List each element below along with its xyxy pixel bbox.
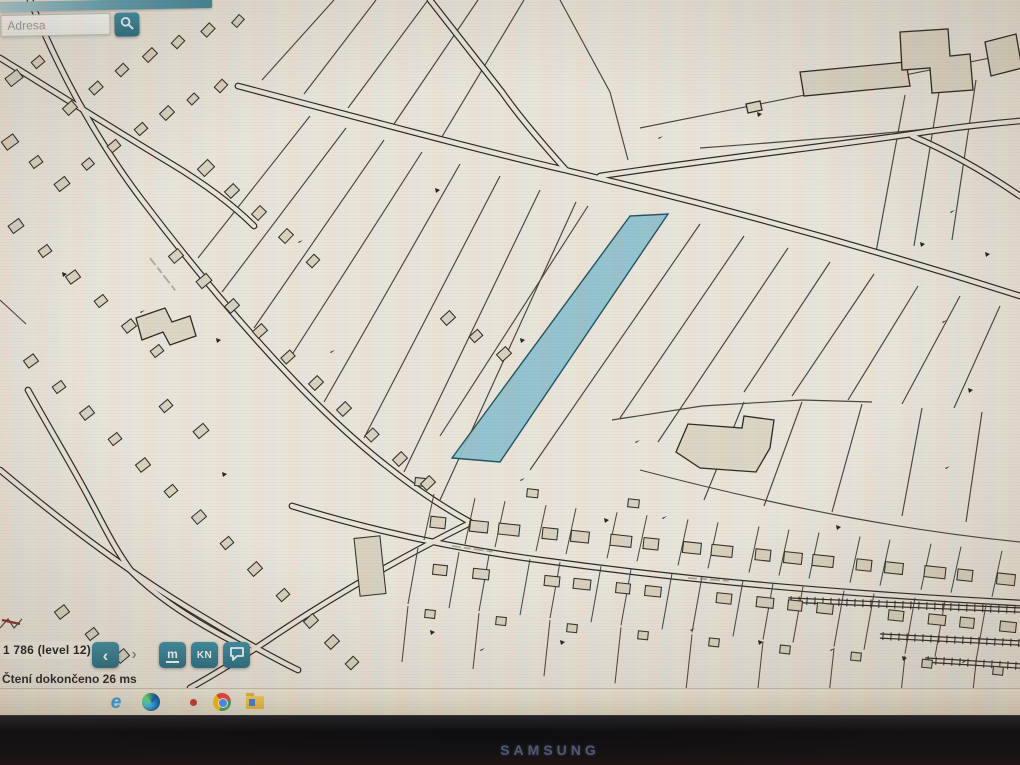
measure-icon: m [166, 648, 179, 663]
windows-taskbar: e [0, 688, 1020, 715]
scale-indicator: 1 786 (level 12) ▾ [0, 641, 107, 659]
history-back-button[interactable]: ‹ [92, 642, 119, 668]
file-manager-icon[interactable] [245, 692, 265, 712]
scale-label: 1 786 (level 12) [3, 643, 91, 657]
internet-explorer-icon[interactable]: e [106, 692, 126, 712]
chevron-left-icon: ‹ [103, 647, 109, 664]
notification-dot-icon [183, 692, 203, 712]
map-toolbar: ‹ › m KN [92, 642, 250, 668]
info-bubble-button[interactable] [223, 642, 250, 668]
monitor-brand-logo: SAMSUNG [0, 742, 1020, 758]
search-panel [0, 0, 213, 39]
panel-header-bar[interactable] [0, 0, 212, 12]
edge-icon[interactable] [141, 692, 161, 712]
search-button[interactable] [114, 12, 139, 36]
search-icon [119, 15, 134, 33]
samsung-monitor: 1 786 (level 12) ▾ ‹ › m KN [0, 0, 1020, 765]
monitor-bezel: SAMSUNG [0, 714, 1020, 765]
kn-layer-button[interactable]: KN [191, 642, 218, 668]
measure-tool-button[interactable]: m [159, 642, 186, 668]
speech-bubble-icon [229, 646, 245, 664]
history-forward-button[interactable]: › [124, 643, 144, 667]
map-viewport[interactable]: 1 786 (level 12) ▾ ‹ › m KN [0, 0, 1020, 688]
chrome-icon[interactable] [212, 692, 232, 712]
cadastral-map[interactable] [0, 0, 1020, 688]
status-message: Čtení dokončeno 26 ms [2, 672, 137, 686]
search-input[interactable] [0, 13, 110, 37]
